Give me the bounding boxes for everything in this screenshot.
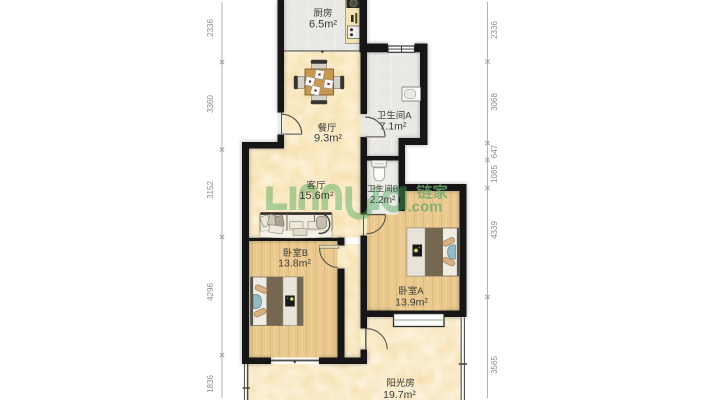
svg-text:7.1m²: 7.1m² (380, 121, 407, 133)
svg-text:3360: 3360 (206, 95, 215, 113)
svg-text:3565: 3565 (490, 356, 499, 374)
svg-text:13.9m²: 13.9m² (395, 297, 428, 309)
svg-text:2336: 2336 (206, 19, 215, 37)
svg-text:1836: 1836 (206, 375, 215, 393)
svg-text:.com: .com (408, 199, 443, 216)
svg-text:B: B (393, 184, 399, 194)
svg-text:1085: 1085 (490, 165, 499, 183)
svg-text:A: A (417, 286, 424, 297)
svg-text:2.2m²: 2.2m² (370, 195, 396, 206)
svg-text:13.8m²: 13.8m² (278, 258, 311, 270)
svg-text:2336: 2336 (490, 21, 499, 39)
svg-text:3068: 3068 (490, 93, 499, 111)
svg-text:9.3m²: 9.3m² (314, 133, 342, 145)
svg-text:3152: 3152 (206, 181, 215, 199)
svg-text:4339: 4339 (490, 221, 499, 239)
svg-text:19.7m²: 19.7m² (383, 389, 416, 400)
svg-text:15.6m²: 15.6m² (299, 190, 334, 202)
svg-text:4296: 4296 (206, 283, 215, 301)
svg-text:647: 647 (490, 144, 499, 158)
svg-text:6.5m²: 6.5m² (309, 19, 337, 31)
